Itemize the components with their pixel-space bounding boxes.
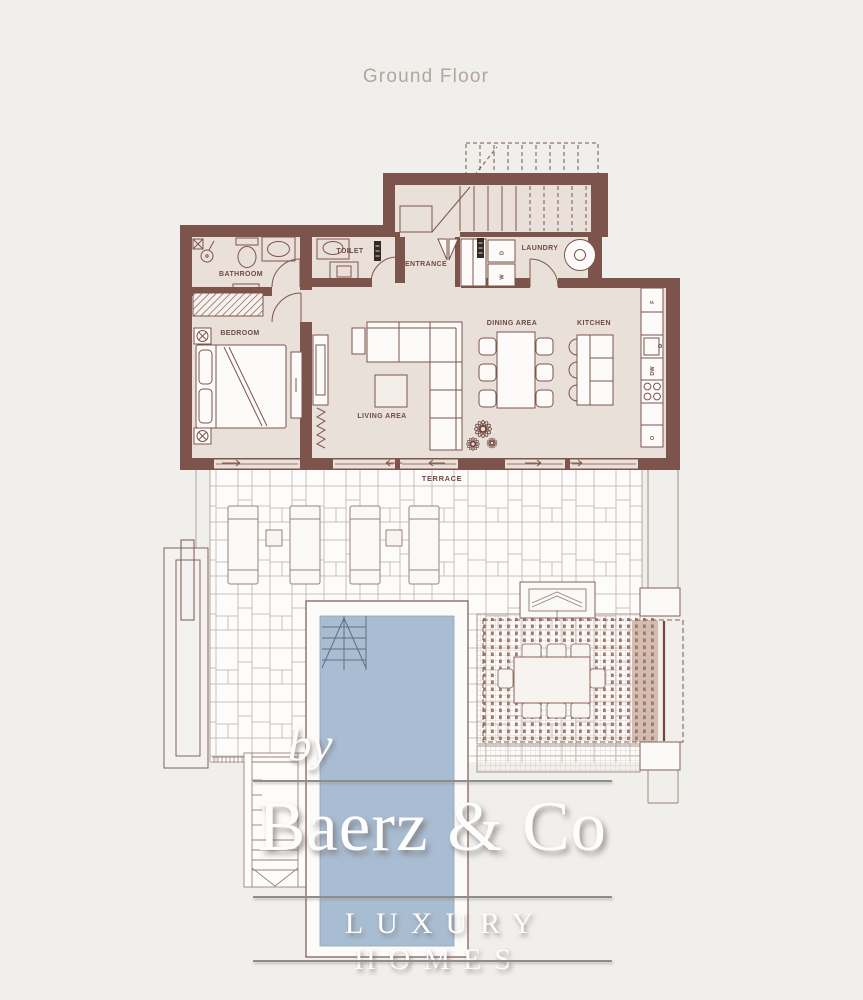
label-dining-area: DINING AREA (487, 320, 537, 327)
bed (196, 345, 286, 428)
label-bedroom: BEDROOM (220, 330, 259, 337)
door-tag (477, 238, 484, 258)
dining-table (497, 332, 535, 408)
pool (306, 601, 468, 957)
label-dryer: D (500, 251, 506, 255)
label-oven: O (650, 435, 656, 440)
floor-plan-drawing: TERRACE (0, 0, 863, 1000)
side-table (266, 530, 282, 546)
nightstand (194, 328, 211, 344)
terrace-steps (520, 582, 595, 618)
sun-lounger (290, 506, 320, 584)
label-toilet: TOILET (336, 248, 363, 255)
label-dishwasher: DW (650, 366, 656, 376)
washing-machine (565, 240, 596, 271)
label-bathroom: BATHROOM (219, 271, 263, 278)
pool-water (320, 616, 454, 946)
nightstand (194, 428, 211, 444)
sofa-side-table (352, 328, 365, 354)
door-tag (374, 241, 381, 261)
sun-lounger (228, 506, 258, 584)
sun-lounger (350, 506, 380, 584)
label-living-area: LIVING AREA (357, 413, 406, 420)
side-table (386, 530, 402, 546)
label-laundry: LAUNDRY (522, 245, 559, 252)
label-terrace: TERRACE (422, 474, 462, 483)
kitchen-counter: F DW O (641, 288, 663, 447)
pergola-pier (640, 588, 680, 616)
label-kitchen: KITCHEN (577, 320, 611, 327)
outdoor-table (514, 657, 590, 703)
floor-plan-page: Ground Floor (0, 0, 863, 1000)
sun-lounger (409, 506, 439, 584)
label-entrance: ENTRANCE (405, 261, 447, 268)
sliding-doors (214, 460, 638, 469)
coffee-table (375, 375, 407, 407)
planter (164, 540, 208, 768)
label-washer: W (500, 274, 506, 280)
exterior-stairs (244, 753, 306, 887)
pergola-pier (640, 742, 680, 770)
